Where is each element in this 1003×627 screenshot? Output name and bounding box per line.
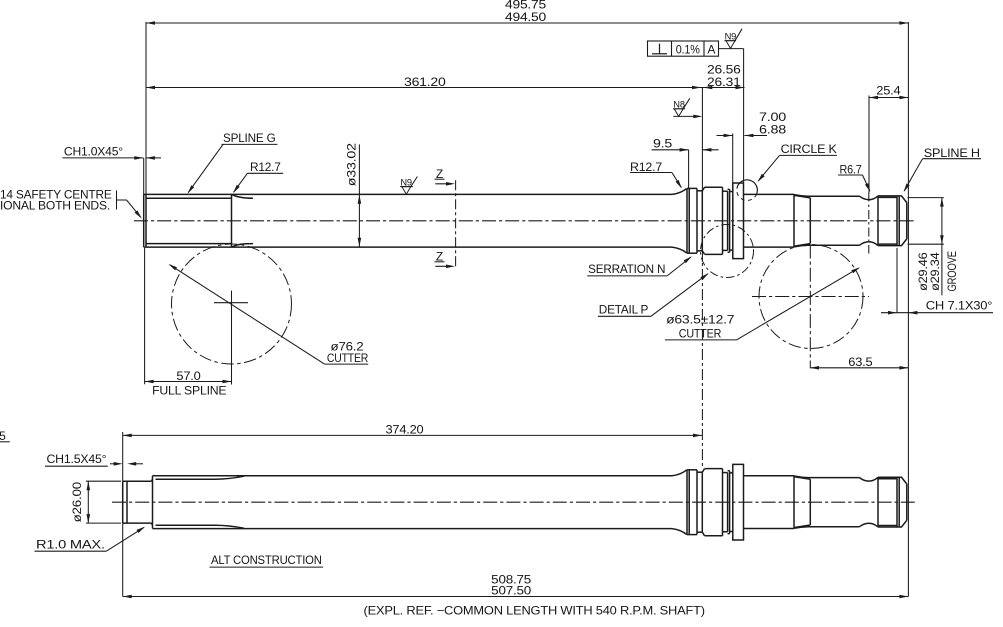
svg-text:507.50: 507.50 (491, 584, 531, 598)
svg-text:.5: .5 (0, 429, 6, 443)
svg-text:ø29.34: ø29.34 (928, 252, 942, 291)
svg-text:26.31: 26.31 (707, 75, 741, 89)
svg-text:N9: N9 (725, 31, 737, 41)
svg-text:0.1%: 0.1% (676, 42, 700, 56)
svg-text:9.5: 9.5 (653, 136, 673, 150)
svg-text:ø26.00: ø26.00 (70, 481, 84, 522)
svg-text:57.0: 57.0 (176, 369, 201, 383)
svg-text:DETAIL P: DETAIL P (599, 303, 649, 317)
svg-text:361.20: 361.20 (404, 75, 446, 89)
svg-text:IONAL BOTH ENDS.: IONAL BOTH ENDS. (0, 199, 110, 213)
svg-text:SERRATION N: SERRATION N (588, 262, 665, 276)
svg-text:R1.0 MAX.: R1.0 MAX. (36, 538, 105, 552)
svg-text:374.20: 374.20 (386, 423, 425, 437)
svg-text:(EXPL. REF. −COMMON LENGTH: (EXPL. REF. −COMMON LENGTH WITH 540 R.P.… (364, 604, 706, 618)
svg-text:ALT CONSTRUCTION: ALT CONSTRUCTION (211, 553, 322, 567)
svg-text:SPLINE G: SPLINE G (223, 131, 276, 145)
svg-text:25.4: 25.4 (876, 84, 901, 98)
svg-text:R12.7: R12.7 (250, 160, 281, 174)
svg-text:CUTTER: CUTTER (679, 326, 722, 340)
svg-text:6.88: 6.88 (759, 123, 787, 137)
svg-text:CIRCLE K: CIRCLE K (781, 142, 837, 156)
svg-text:CUTTER: CUTTER (327, 351, 369, 365)
svg-text:ø63.5±12.7: ø63.5±12.7 (666, 313, 735, 327)
svg-text:ø33.02: ø33.02 (344, 143, 358, 187)
svg-text:494.50: 494.50 (505, 10, 547, 24)
svg-text:CH1.5X45°: CH1.5X45° (47, 452, 107, 466)
svg-text:CH1.0X45°: CH1.0X45° (64, 145, 123, 159)
svg-text:N9: N9 (400, 177, 412, 187)
svg-text:63.5: 63.5 (848, 355, 873, 369)
svg-text:R12.7: R12.7 (630, 160, 663, 174)
svg-text:R6.7: R6.7 (840, 163, 862, 177)
svg-text:GROOVE: GROOVE (945, 251, 959, 292)
svg-text:SPLINE H: SPLINE H (924, 146, 980, 160)
svg-text:FULL SPLINE: FULL SPLINE (152, 384, 226, 398)
svg-text:A: A (707, 42, 715, 56)
svg-text:CH 7.1X30°: CH 7.1X30° (926, 298, 993, 312)
